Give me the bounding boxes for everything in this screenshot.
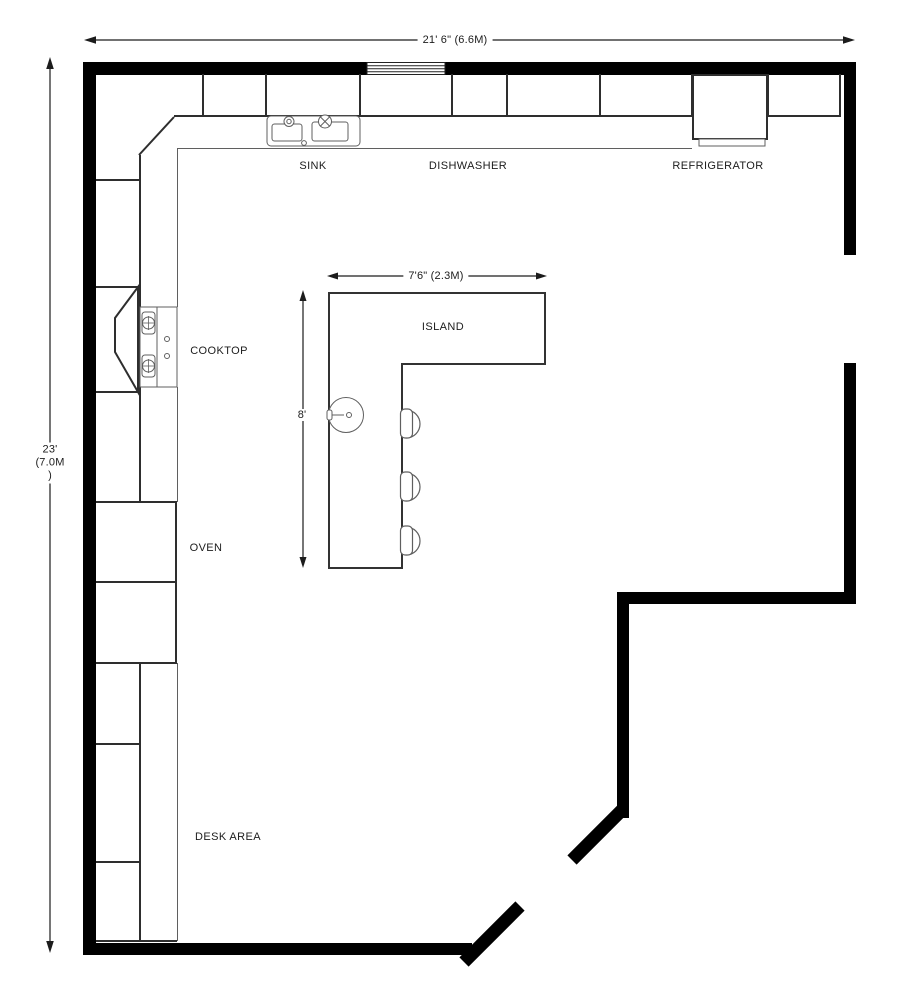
wall-mid-vertical: [617, 592, 629, 818]
wall-top: [83, 62, 856, 75]
stools: [401, 409, 421, 555]
label-island: ISLAND: [422, 321, 464, 333]
dim-overall-depth-line2: (7.0M: [35, 457, 64, 470]
label-dishwasher: DISHWASHER: [429, 160, 507, 172]
floor-plan-linework: [0, 0, 900, 1002]
dim-overall-depth: 23' (7.0M ): [32, 443, 67, 484]
range-hood-icon: [115, 287, 138, 392]
sink-icon: [267, 115, 360, 146]
wall-right-upper: [844, 62, 856, 255]
dim-overall-depth-line3: ): [35, 470, 64, 483]
kitchen-floor-plan: 21' 6" (6.6M) 23' (7.0M ) 7'6" (2.3M) 8'…: [0, 0, 900, 1002]
dim-island-width: 7'6" (2.3M): [403, 270, 468, 282]
label-sink: SINK: [299, 160, 326, 172]
stool-icon: [401, 409, 421, 438]
label-oven: OVEN: [190, 542, 223, 554]
corner-counter-diagonal: [139, 117, 174, 155]
refrigerator-icon: [693, 75, 767, 146]
dim-island-depth: 8': [295, 409, 310, 421]
label-cooktop: COOKTOP: [190, 345, 248, 357]
stool-icon: [401, 526, 421, 555]
wall-right-lower: [844, 363, 856, 604]
overall-depth-arrow: [46, 57, 54, 953]
wall-bottom-right: [617, 592, 856, 604]
island-outline: [329, 293, 545, 568]
dim-overall-depth-line1: 23': [35, 444, 64, 457]
dim-overall-width: 21' 6" (6.6M): [418, 34, 493, 46]
stool-icon: [401, 472, 421, 501]
wall-left: [83, 62, 96, 955]
wall-diagonal-upper: [572, 808, 624, 860]
cooktop-icon: [140, 307, 177, 387]
wall-bottom: [83, 943, 472, 955]
island-depth-arrow: [300, 290, 307, 568]
outer-walls: [83, 62, 856, 962]
label-refrigerator: REFRIGERATOR: [672, 160, 763, 172]
wall-diagonal-lower: [464, 906, 520, 962]
label-desk-area: DESK AREA: [195, 831, 261, 843]
window-icon: [367, 63, 445, 75]
